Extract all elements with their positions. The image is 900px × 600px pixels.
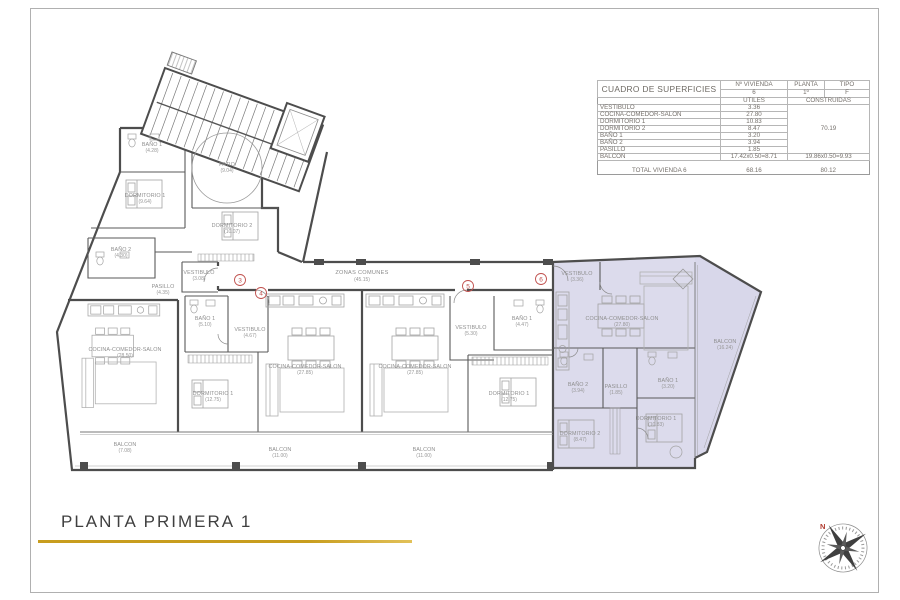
table-total-row: TOTAL VIVIENDA 6 68.16 80.12 xyxy=(598,168,870,175)
room-name-label: BAÑO 1 xyxy=(195,315,215,322)
room-area-label: (10.83) xyxy=(648,422,664,428)
row-construidas: 19.86x0.50=9.93 xyxy=(788,154,870,161)
room-area-label: (16.24) xyxy=(717,345,733,351)
room-area-label: (3.20) xyxy=(661,384,674,390)
row-utiles: 17.42x0.50=8.71 xyxy=(721,154,788,161)
total-utiles: 68.16 xyxy=(721,168,788,175)
room-area-label: (3.08) xyxy=(192,276,205,282)
room-area-label: (28.50) xyxy=(117,353,133,359)
zonas-comunes-label: ZONAS COMUNES xyxy=(335,270,388,276)
page-title: PLANTA PRIMERA 1 xyxy=(61,512,252,532)
zonas-comunes-area: (45.15) xyxy=(354,277,370,283)
room-area-label: (8.47) xyxy=(573,437,586,443)
unit-number: 6 xyxy=(539,277,543,284)
room-area-label: (3.36) xyxy=(570,277,583,283)
col-planta-header: PLANTA xyxy=(788,81,825,90)
room-name-label: BAÑO 1 xyxy=(658,377,678,384)
room-area-label: (4.30) xyxy=(114,253,127,259)
room-area-label: (4.35) xyxy=(156,290,169,296)
room-area-label: (5.10) xyxy=(198,322,211,328)
total-label: TOTAL VIVIENDA 6 xyxy=(598,168,721,175)
title-underline xyxy=(38,540,412,543)
col-construidas-header: CONSTRUIDAS xyxy=(788,98,870,105)
row-name: BALCON xyxy=(598,154,721,161)
table-title: CUADRO DE SUPERFICIES xyxy=(598,81,721,98)
unit-number: 4 xyxy=(259,291,263,298)
room-name-label: BAÑO 2 xyxy=(111,246,131,253)
room-area-label: (5.30) xyxy=(464,331,477,337)
construidas-merged-value: 70.19 xyxy=(788,105,870,154)
room-area-label: (27.85) xyxy=(407,370,423,376)
col-vivienda-header: Nº VIVIENDA xyxy=(721,81,788,90)
floor-plan-page: BAÑO 1 (4.28) DORMITORIO 1 (9.64) PATIO … xyxy=(0,0,900,600)
room-name-label: BAÑO 1 xyxy=(142,141,162,148)
room-area-label: (4.28) xyxy=(145,148,158,154)
room-area-label: (3.94) xyxy=(571,388,584,394)
room-area-label: (10.07) xyxy=(224,229,240,235)
unit-number-markers xyxy=(235,274,547,299)
room-name-label: BAÑO 1 xyxy=(512,315,532,322)
unit-number: 3 xyxy=(238,278,242,285)
room-area-label: (4.67) xyxy=(243,333,256,339)
room-area-label: (11.00) xyxy=(416,453,432,459)
room-area-label: (9.64) xyxy=(138,199,151,205)
compass-north-label: N xyxy=(820,522,825,531)
room-area-label: (11.00) xyxy=(272,453,288,459)
room-area-label: (27.85) xyxy=(297,370,313,376)
unit-number: 5 xyxy=(466,284,470,291)
areas-table: CUADRO DE SUPERFICIES Nº VIVIENDA PLANTA… xyxy=(597,80,870,175)
table-row: BALCON 17.42x0.50=8.71 19.86x0.50=9.93 xyxy=(598,154,870,161)
room-area-label: (12.75) xyxy=(205,397,221,403)
total-construidas: 80.12 xyxy=(788,168,870,175)
room-area-label: (27.80) xyxy=(614,322,630,328)
room-area-label: (7.08) xyxy=(118,448,131,454)
room-area-label: (1.85) xyxy=(609,390,622,396)
compass-rose xyxy=(806,511,880,585)
room-name-label: BAÑO 2 xyxy=(568,381,588,388)
col-tipo-header: TIPO xyxy=(825,81,870,90)
room-area-label: (4.47) xyxy=(515,322,528,328)
room-area-label: (12.75) xyxy=(501,397,517,403)
room-area-label: (9.04) xyxy=(220,168,233,174)
